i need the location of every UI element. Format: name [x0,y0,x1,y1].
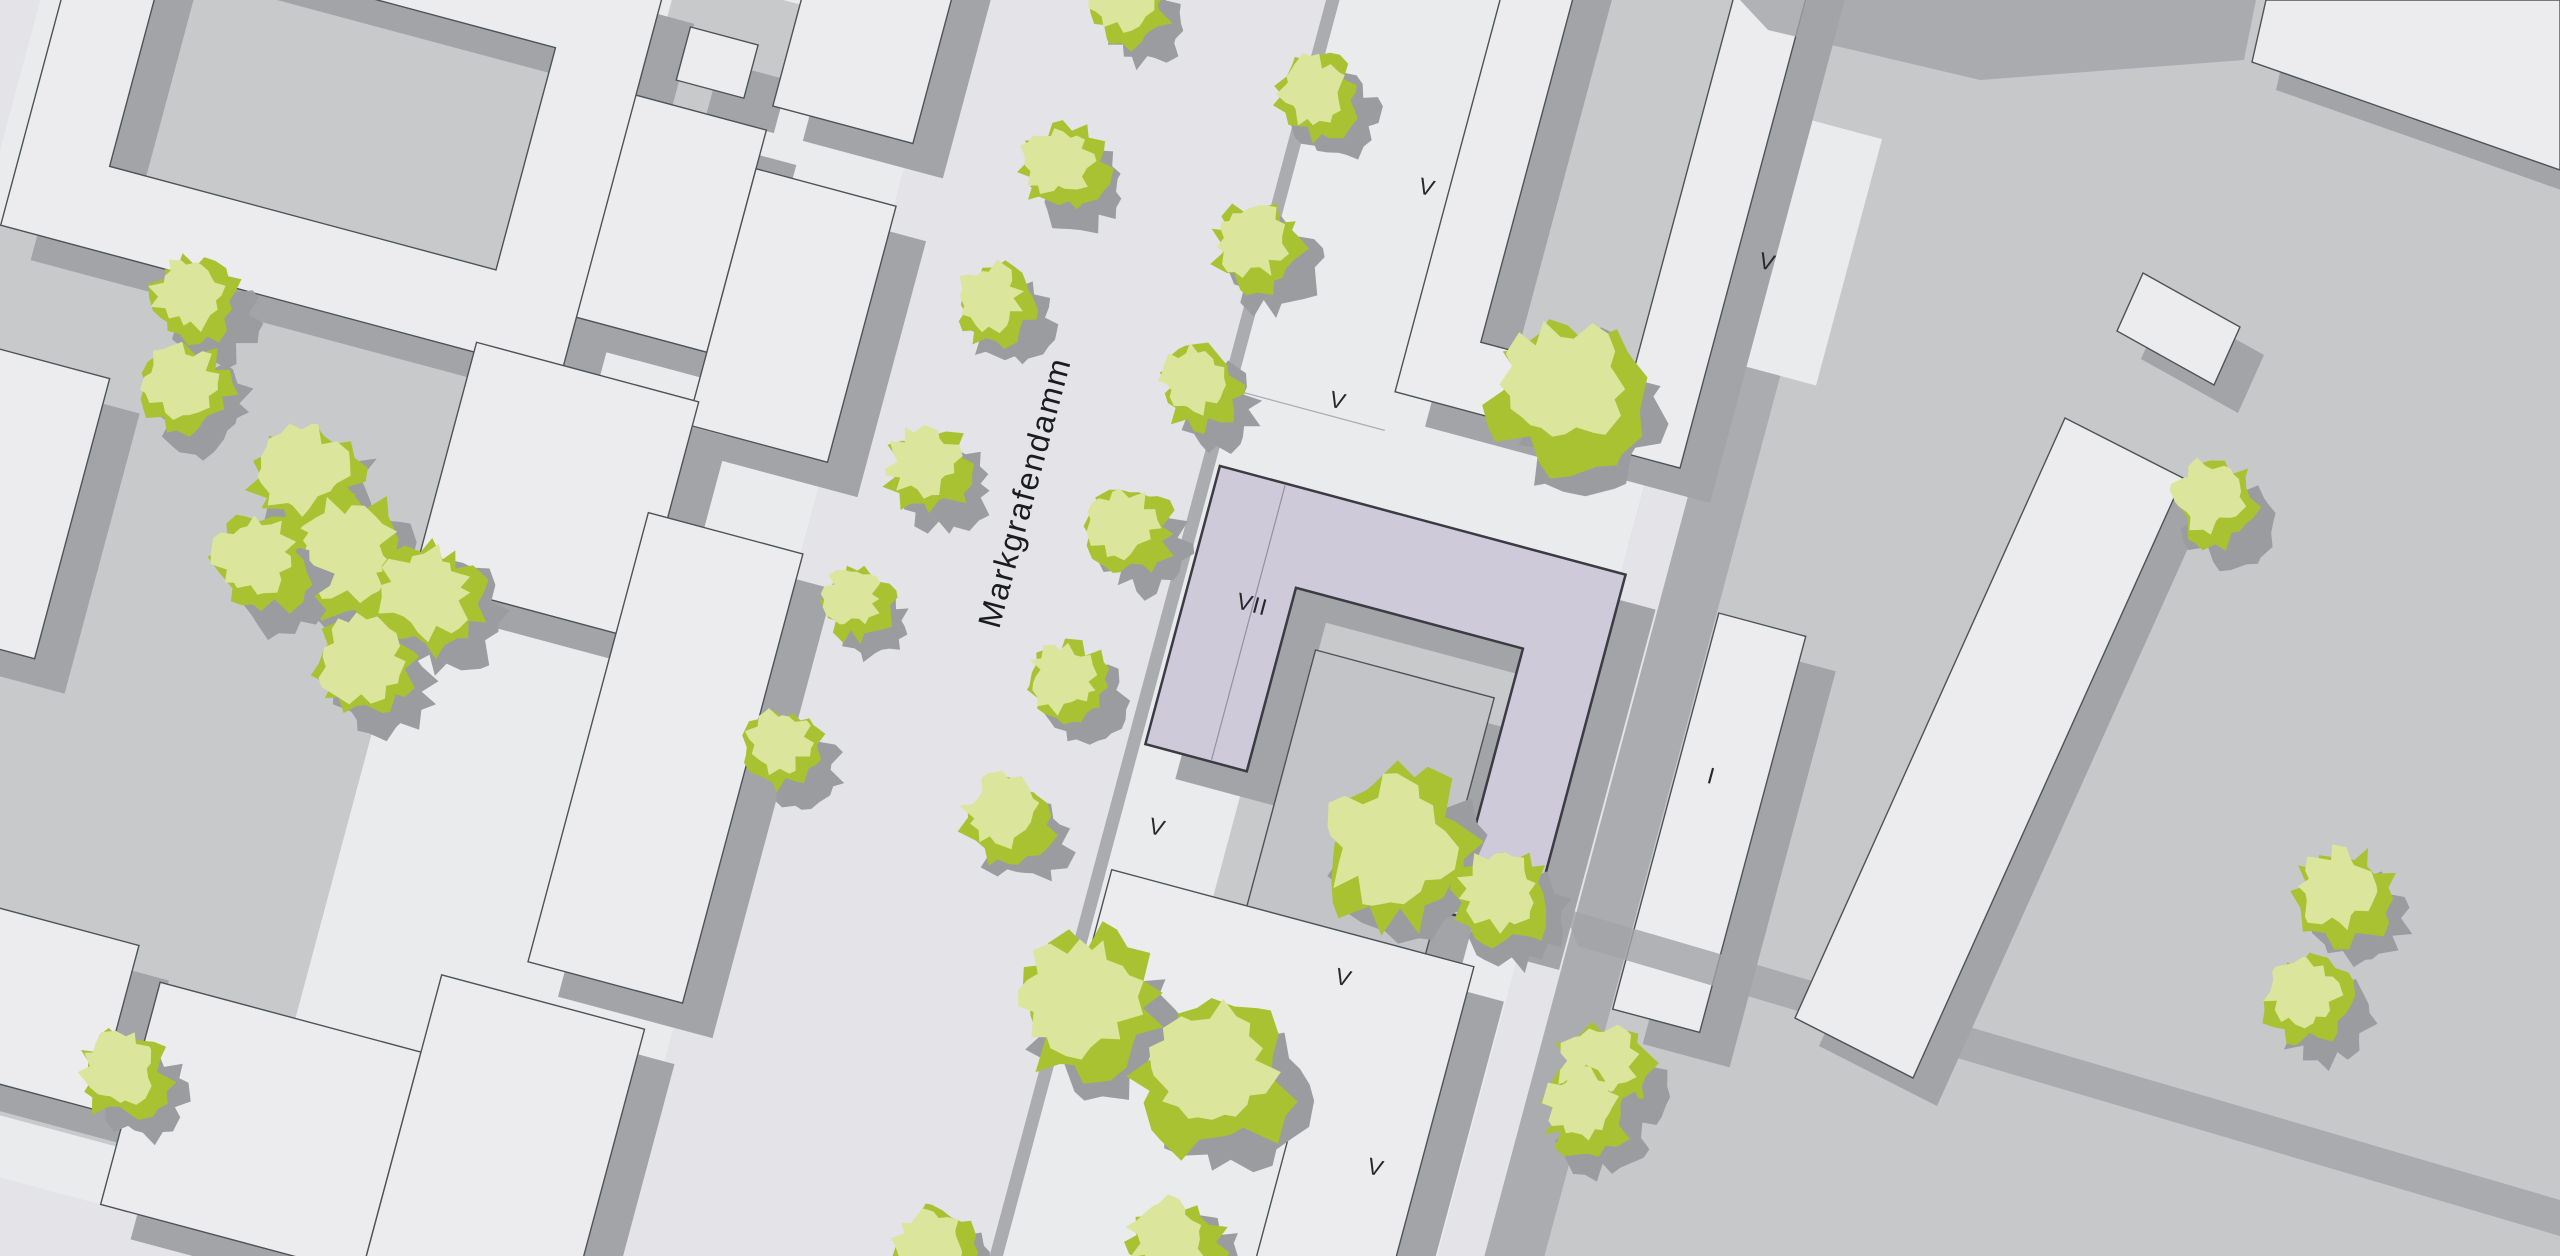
city-map-canvas[interactable]: Markgrafendamm city map VVVVIIIVVVMarkgr… [0,0,2560,1256]
map-viewport[interactable]: Markgrafendamm city map VVVVIIIVVVMarkgr… [0,0,2560,1256]
